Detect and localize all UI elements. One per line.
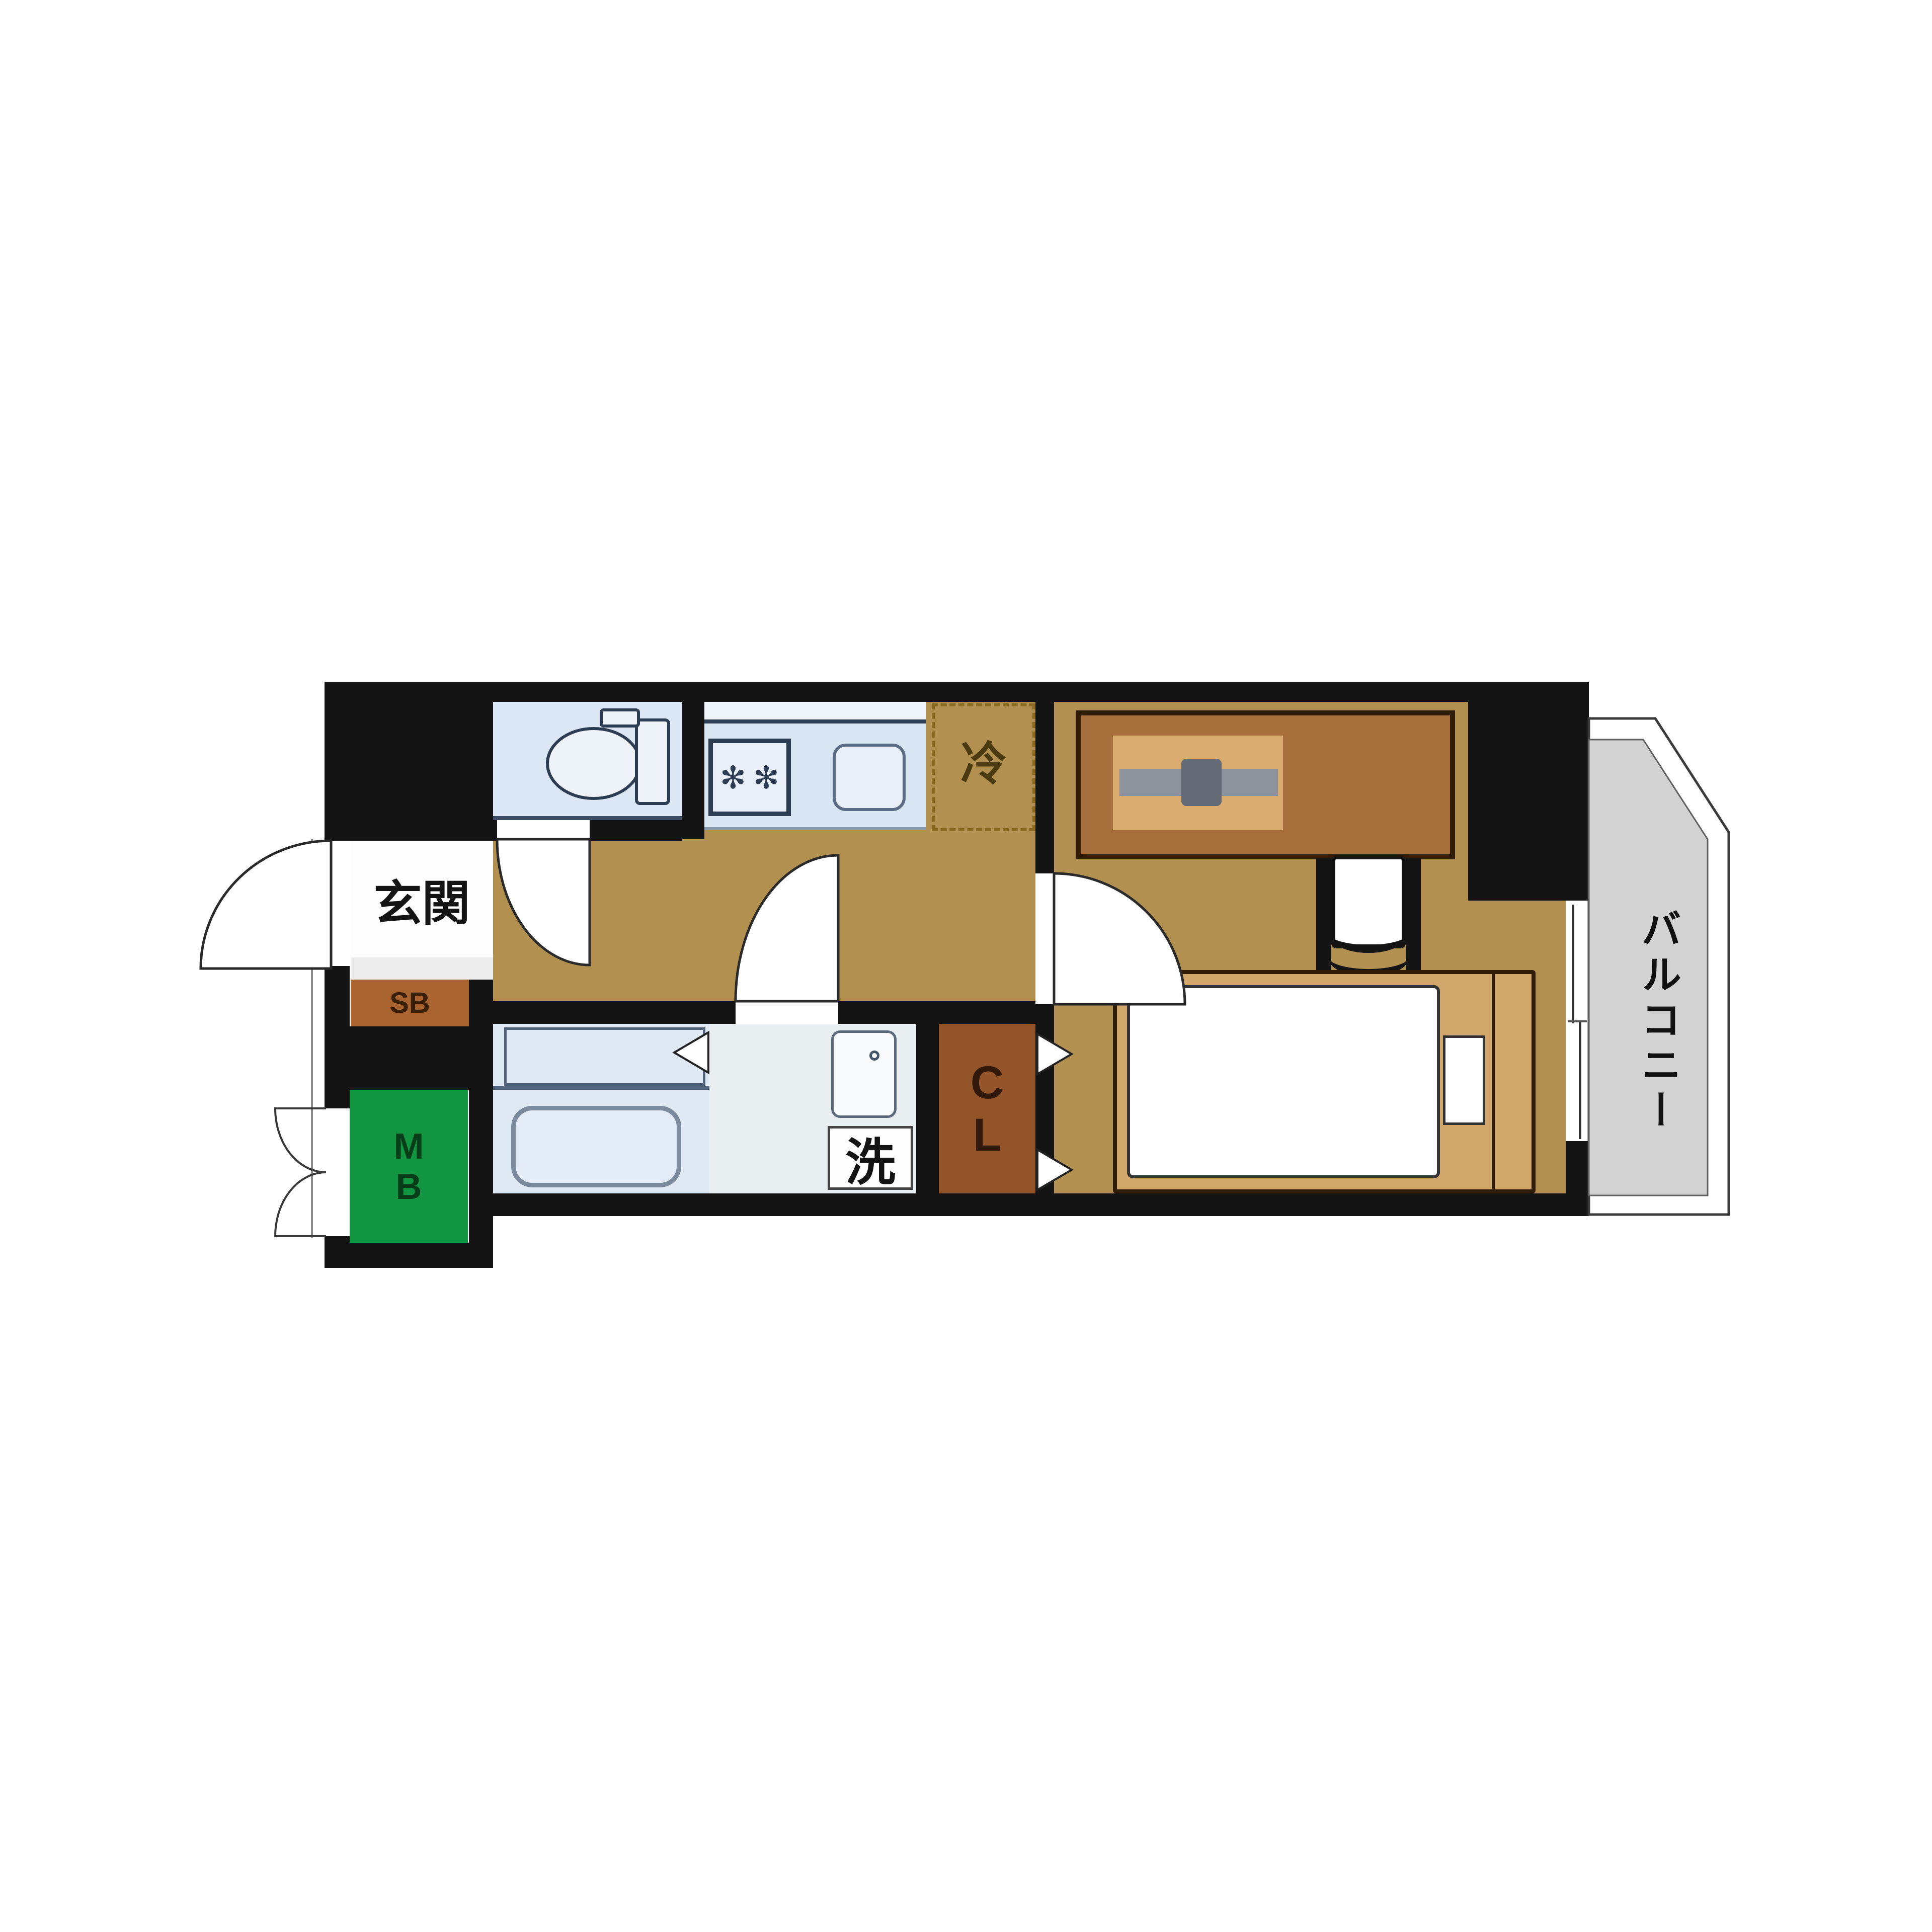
sliding-window-pane-lower <box>1579 1021 1581 1139</box>
opening-washroom <box>736 1001 838 1024</box>
bed-headboard-line <box>1492 974 1495 1190</box>
bathroom-upper-panel <box>504 1027 705 1086</box>
washing-machine-space: 洗 <box>828 1126 913 1190</box>
floor-plan: 玄関 SB M B ✻ ✻ 冷 洗 C L <box>0 0 1932 1932</box>
balcony-label-box: バルコニー <box>1625 875 1691 1167</box>
exterior-line-left <box>311 839 313 1238</box>
bathtub-icon <box>511 1106 681 1187</box>
wall-top <box>325 682 1589 702</box>
washing-machine-label: 洗 <box>845 1121 896 1194</box>
kitchen-sink-icon <box>833 744 906 811</box>
toilet-lid-icon <box>600 708 640 728</box>
stove-burner-icon: ✻ <box>720 759 746 796</box>
closet: C L <box>939 1024 1035 1193</box>
entrance-step <box>351 957 493 980</box>
opening-bedroom <box>1035 873 1054 1004</box>
kitchen-counter-backsplash <box>704 702 926 723</box>
bathroom-divider <box>493 1086 709 1090</box>
opening-meter-box <box>325 1108 350 1236</box>
wall-mb-bottom <box>325 1243 473 1268</box>
washbasin-icon <box>831 1030 897 1118</box>
stove-icon: ✻ ✻ <box>708 739 791 816</box>
wall-top-right-block <box>1468 702 1589 901</box>
bed-pillow <box>1443 1035 1485 1125</box>
wall-right-pillar <box>1566 1141 1589 1216</box>
sliding-window-meeting-rail <box>1568 1020 1587 1022</box>
balcony-label: バルコニー <box>1629 908 1687 1135</box>
wall-bedroom-lower <box>1035 1004 1054 1193</box>
meter-box-door-upper-arc <box>275 1108 326 1172</box>
closet-label-c: C <box>971 1057 1004 1109</box>
opening-entrance <box>325 841 350 966</box>
desk-keyboard-center <box>1181 759 1222 806</box>
wall-mb-frame <box>350 1026 469 1090</box>
meter-box: M B <box>350 1090 468 1243</box>
meter-box-door-lower-arc <box>275 1172 326 1236</box>
stove-burner-icon: ✻ <box>753 759 779 796</box>
wall-bottom-main <box>469 1193 1589 1216</box>
shoe-box-label: SB <box>389 986 430 1020</box>
closet-label-l: L <box>973 1109 1001 1161</box>
opening-toilet <box>497 818 590 841</box>
toilet-bowl-icon <box>546 727 641 800</box>
refrigerator-label: 冷 <box>960 727 1007 793</box>
wall-bedroom-upper <box>1035 702 1054 873</box>
wall-toilet-kitchen <box>682 702 704 839</box>
meter-box-label-b: B <box>396 1167 422 1207</box>
wall-washroom-closet <box>916 1024 939 1193</box>
entrance-label: 玄関 <box>374 864 470 934</box>
refrigerator-space: 冷 <box>932 703 1035 831</box>
bed-mattress <box>1127 985 1440 1178</box>
sliding-window-pane-upper <box>1572 905 1574 1023</box>
entrance-area: 玄関 <box>351 841 493 957</box>
meter-box-label-m: M <box>394 1126 424 1167</box>
wall-top-left-block <box>350 702 493 841</box>
washbasin-faucet-icon <box>869 1051 879 1061</box>
shoe-box: SB <box>351 980 469 1026</box>
toilet-tank-icon <box>635 718 670 805</box>
